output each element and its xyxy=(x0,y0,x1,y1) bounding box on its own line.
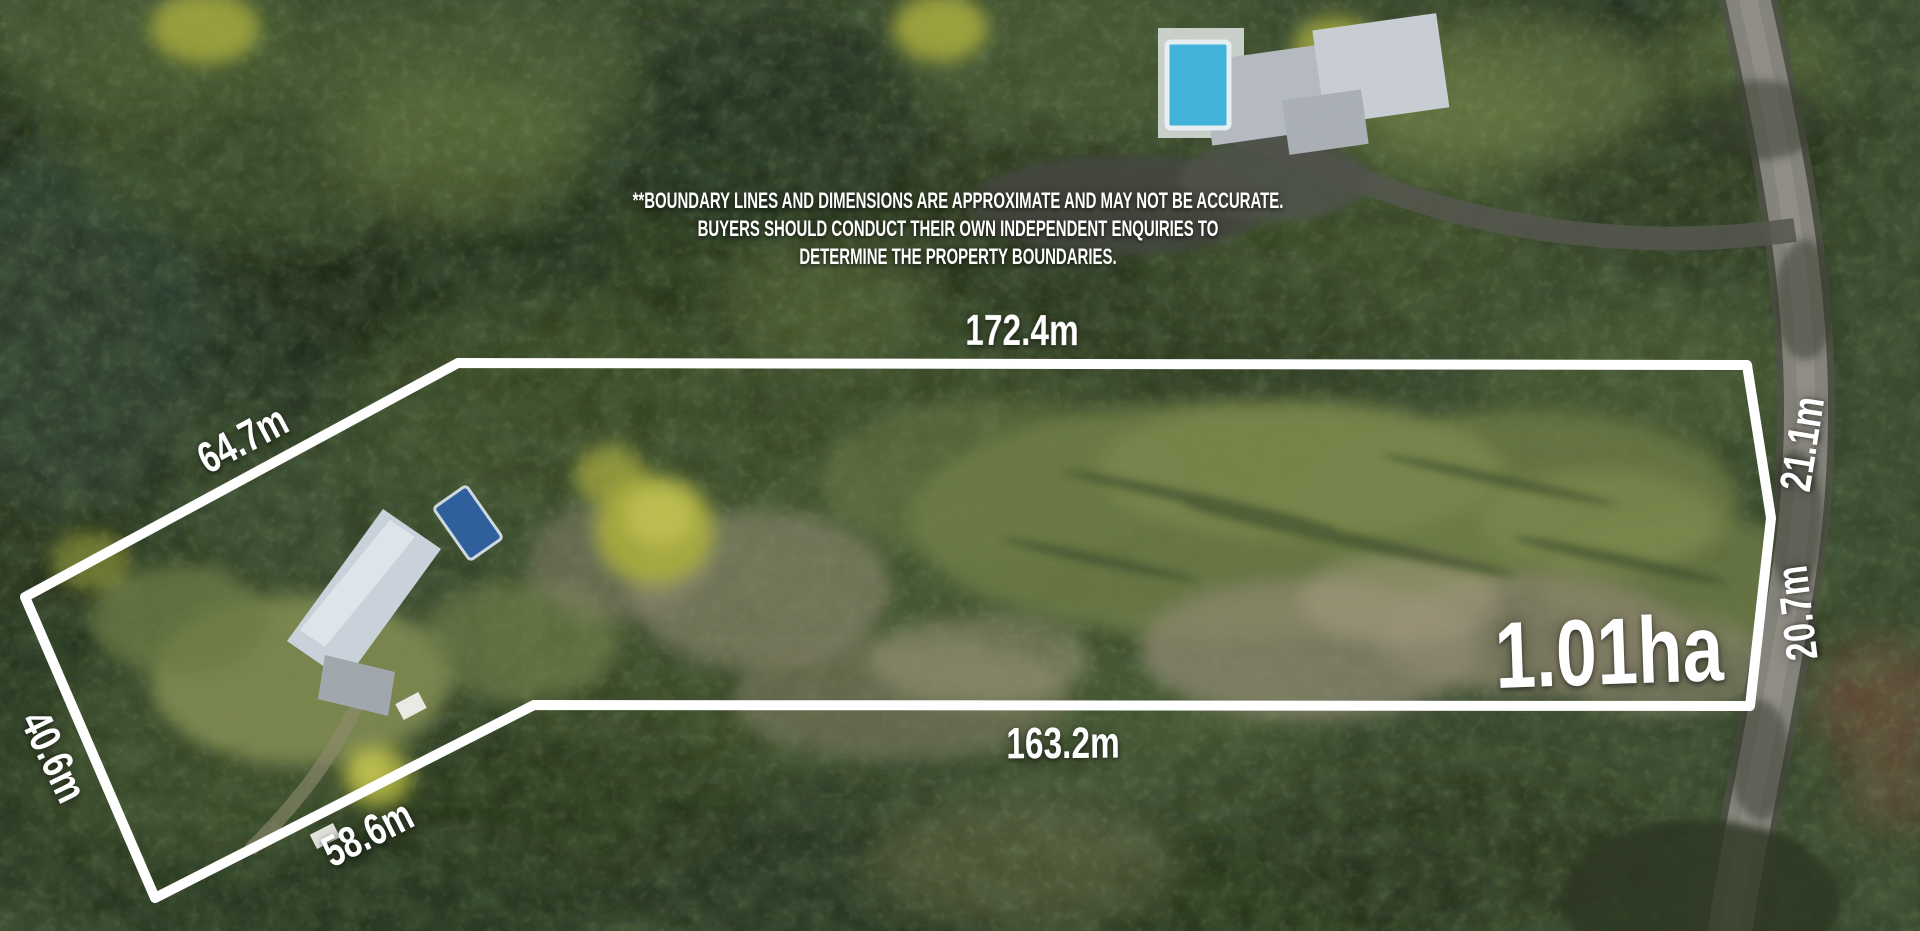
aerial-photo-backdrop xyxy=(0,0,1920,931)
disclaimer-line-1: **BOUNDARY LINES AND DIMENSIONS ARE APPR… xyxy=(633,187,1284,215)
disclaimer-line-2: BUYERS SHOULD CONDUCT THEIR OWN INDEPEND… xyxy=(633,215,1284,243)
dimension-value: 172.4m xyxy=(965,306,1079,356)
area-value: 1.01ha xyxy=(1493,594,1725,710)
disclaimer-line-3: DETERMINE THE PROPERTY BOUNDARIES. xyxy=(633,243,1284,271)
disclaimer-text: **BOUNDARY LINES AND DIMENSIONS ARE APPR… xyxy=(633,187,1284,271)
property-aerial-photo: **BOUNDARY LINES AND DIMENSIONS ARE APPR… xyxy=(0,0,1920,931)
dimension-value: 163.2m xyxy=(1006,719,1120,770)
dimension-label-bottom-boundary: 163.2m xyxy=(988,718,1138,769)
photo-grain xyxy=(0,0,1920,931)
dimension-label-top-boundary: 172.4m xyxy=(947,306,1096,357)
disclaimer: **BOUNDARY LINES AND DIMENSIONS ARE APPR… xyxy=(479,187,1436,271)
area-label: 1.01ha xyxy=(1461,593,1757,711)
